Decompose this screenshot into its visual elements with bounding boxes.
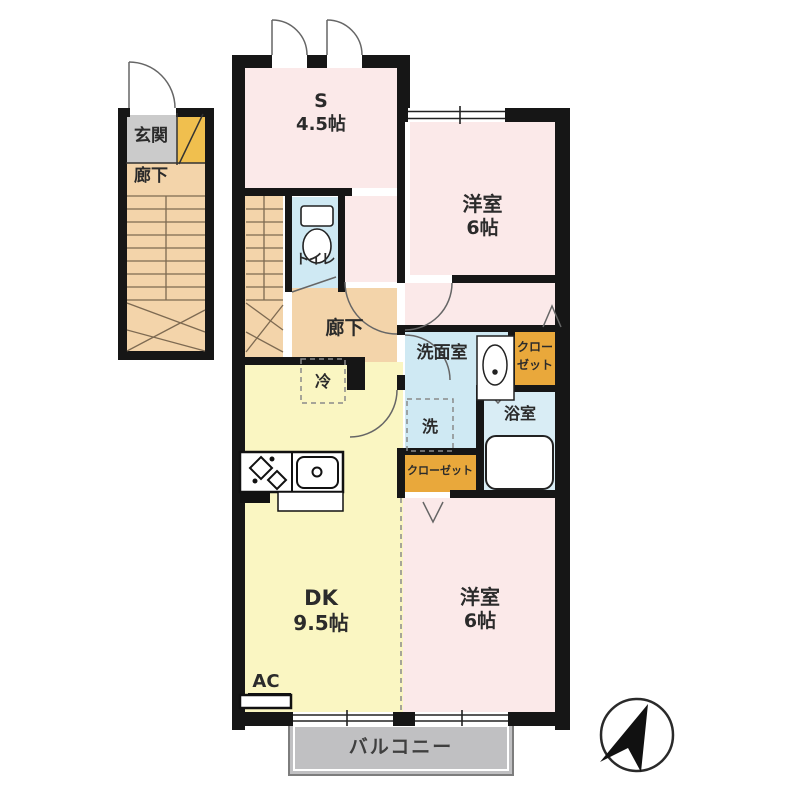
- stairs-main-area: [245, 196, 283, 357]
- entrance-label: 玄関: [124, 126, 178, 147]
- washroom-label: 洗面室: [403, 343, 481, 364]
- balcony-label: バルコニー: [349, 736, 454, 760]
- balcony-floor: バルコニー: [293, 725, 509, 771]
- bathroom-label: 浴室: [484, 404, 556, 424]
- refrigerator-label: 冷: [301, 372, 345, 392]
- shoe-cabinet: [177, 113, 205, 165]
- closet-lower-label: クローゼット: [402, 464, 478, 478]
- service-room-strip: [345, 196, 397, 282]
- toilet-label: トイレ: [289, 252, 341, 270]
- bedroom-bottom-label: 洋室 6帖: [405, 585, 555, 634]
- entrance-hall-stairs: [126, 163, 205, 352]
- laundry-label: 洗: [407, 417, 453, 437]
- hallway-label: 廊下: [292, 317, 397, 341]
- balcony: バルコニー: [288, 720, 514, 776]
- bedroom-top-label: 洋室 6帖: [410, 192, 555, 241]
- ac-label: AC: [240, 671, 292, 694]
- floorplan: バルコニー: [0, 0, 800, 800]
- service-room-label: S 4.5帖: [245, 90, 397, 136]
- dining-kitchen: [245, 362, 403, 715]
- closet-upper-label: クロー ゼット: [513, 338, 557, 374]
- toilet-room: [292, 197, 338, 292]
- vestibule: [405, 283, 555, 325]
- compass-icon: [600, 699, 673, 772]
- north-arrow: [600, 704, 648, 772]
- entrance-hall-label: 廊下: [124, 166, 178, 187]
- dk-label: DK 9.5帖: [245, 585, 397, 636]
